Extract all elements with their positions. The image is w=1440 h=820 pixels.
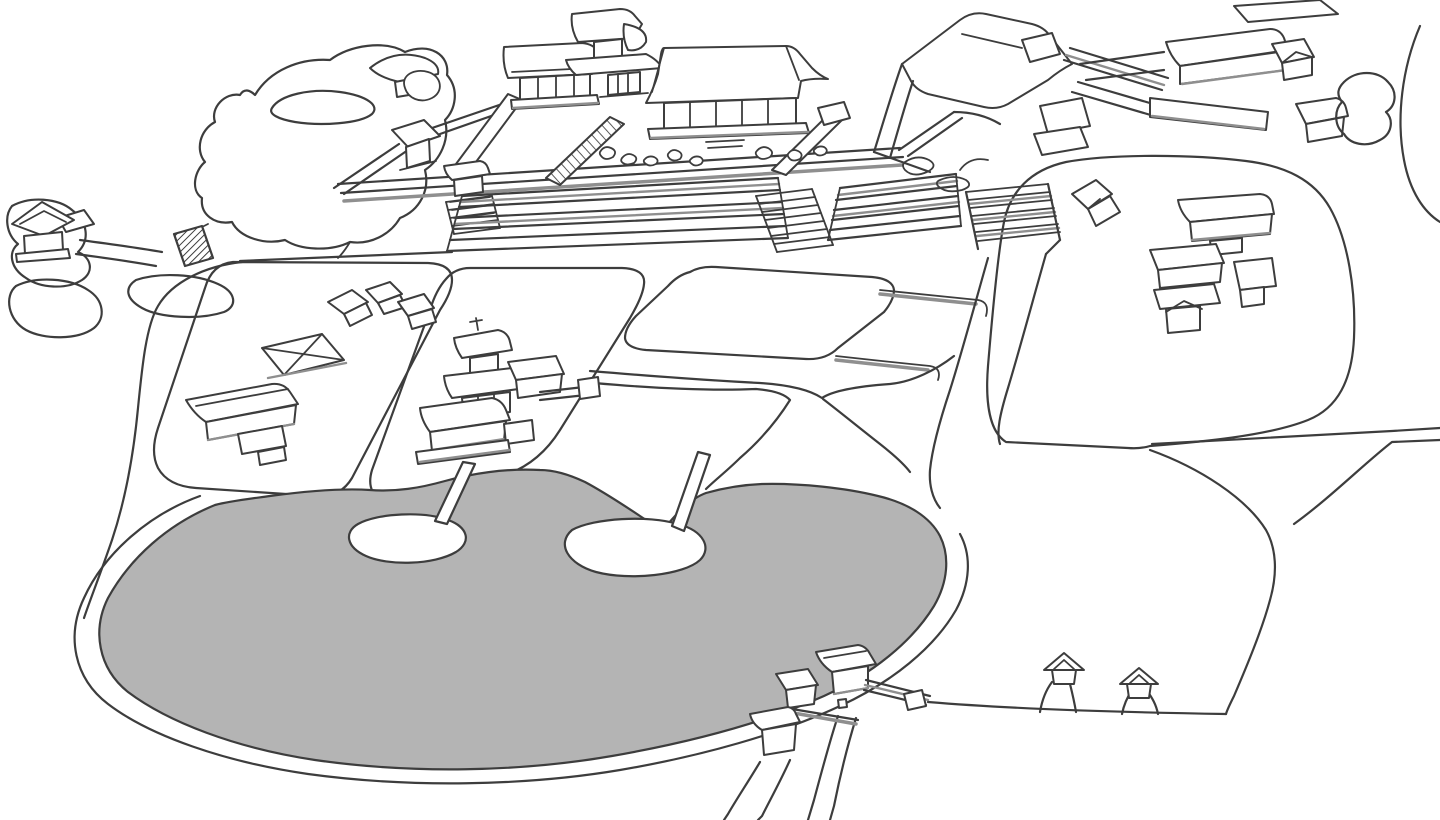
temple-map-drawing: Illustrated aerial line-art map of a Jap… <box>0 0 1440 820</box>
illustration-canvas: Illustrated aerial line-art map of a Jap… <box>0 0 1440 820</box>
west-hall <box>504 43 603 109</box>
hill-rock <box>404 71 440 101</box>
